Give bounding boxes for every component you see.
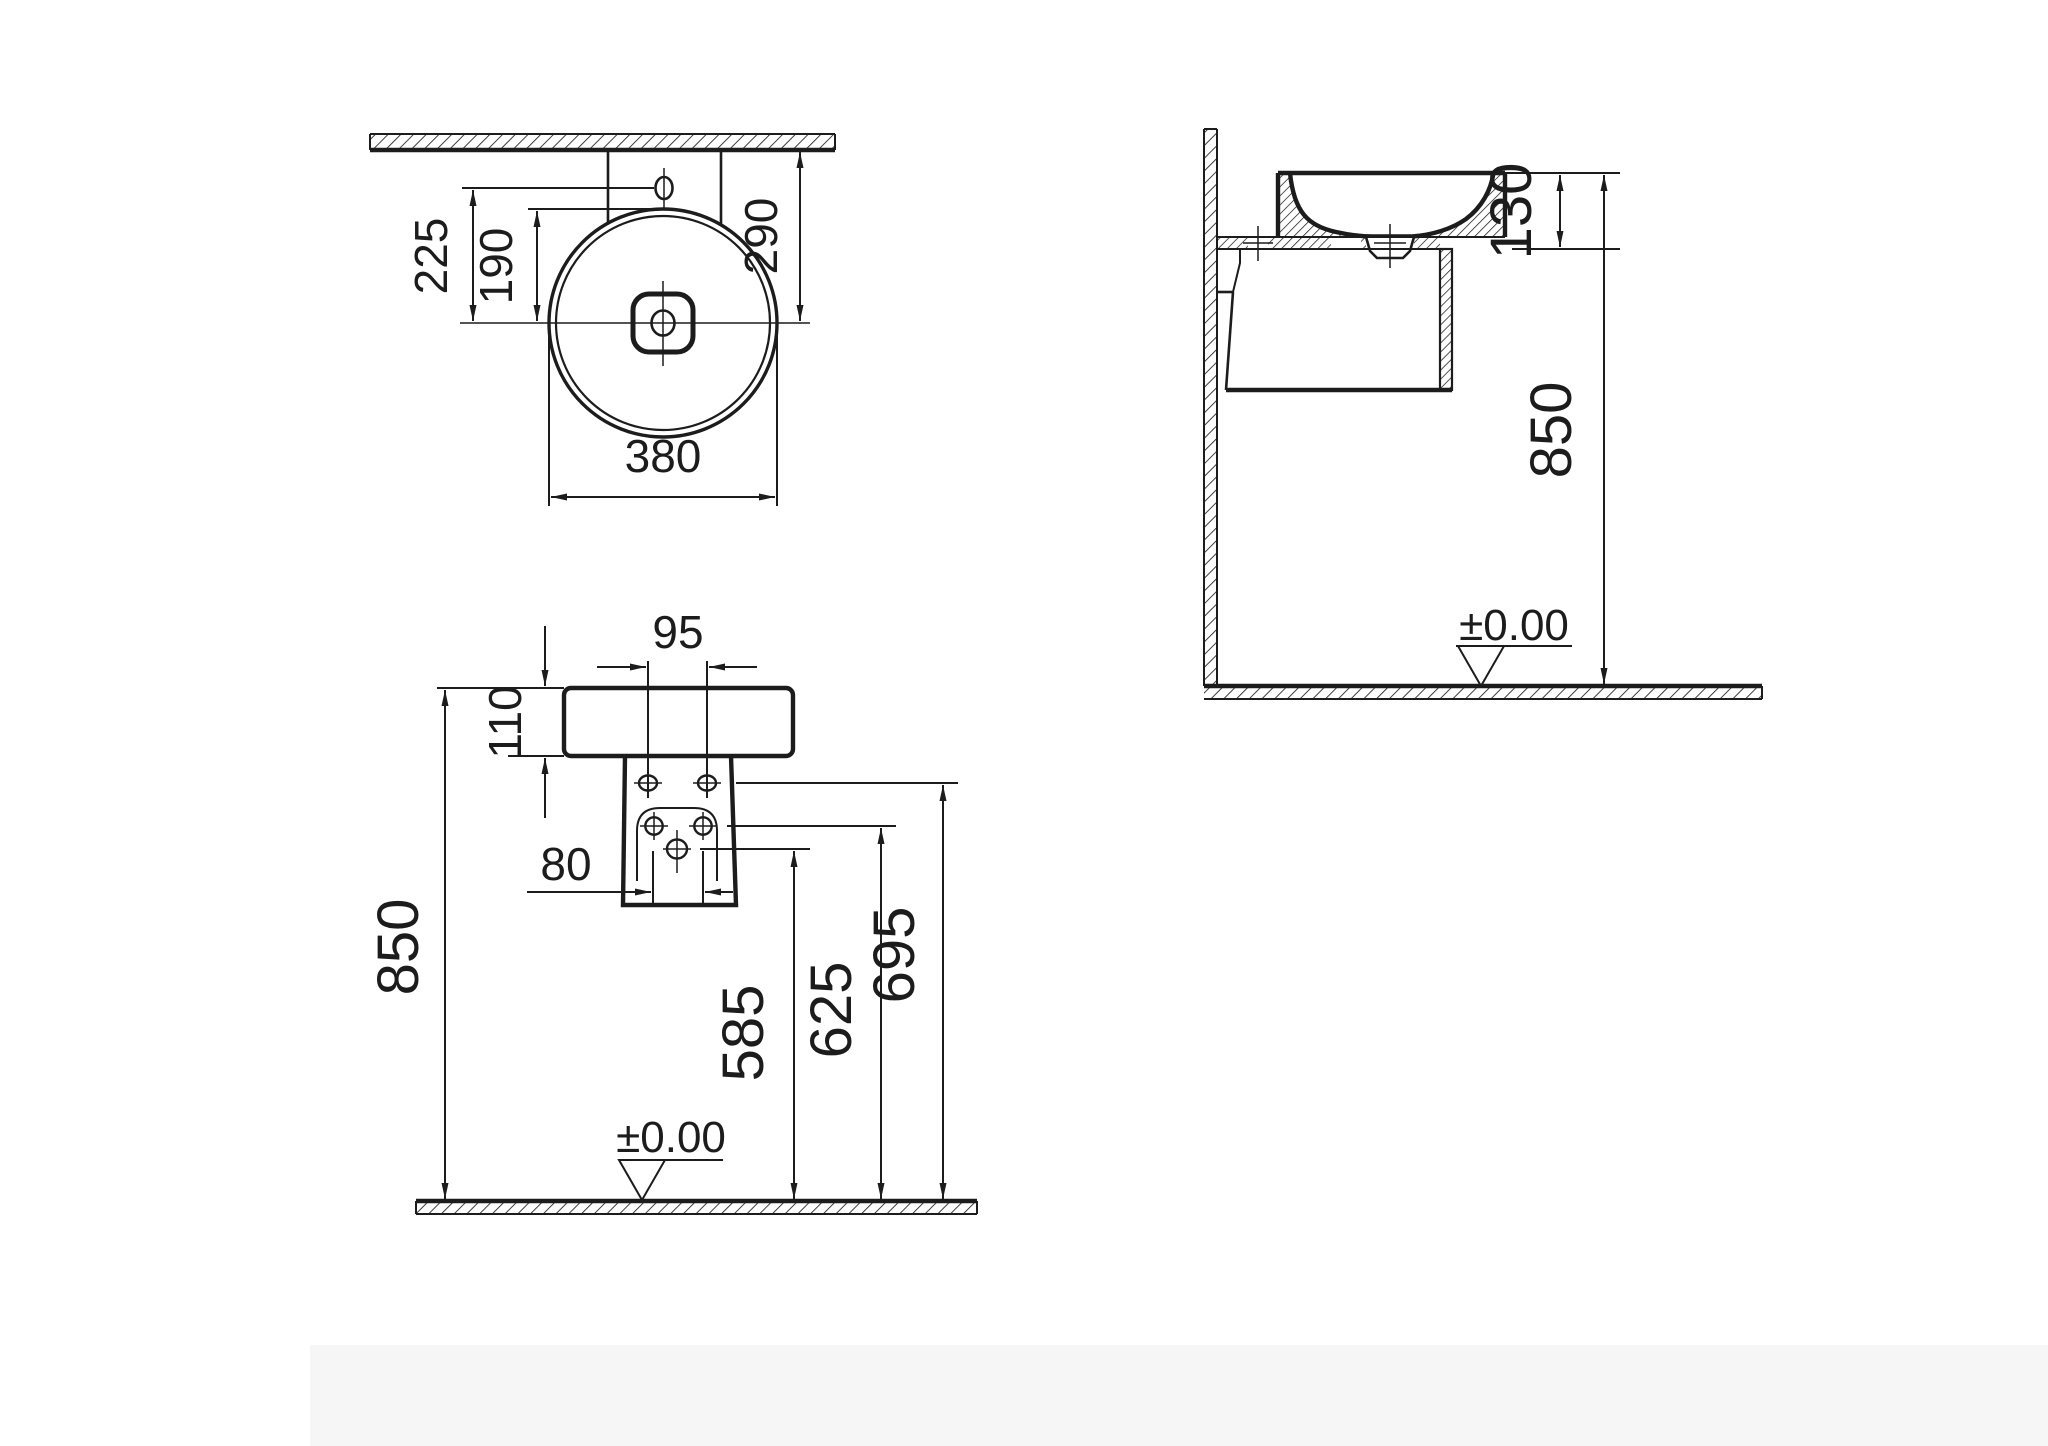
dim-695-label: 695 bbox=[862, 907, 927, 1004]
dim-190-label: 190 bbox=[470, 228, 522, 305]
dim-850-label: 850 bbox=[366, 899, 431, 996]
dim-625-label: 625 bbox=[799, 962, 864, 1059]
pedestal-right-wall bbox=[1440, 249, 1452, 390]
technical-drawing: 225 190 290 380 bbox=[0, 0, 2048, 1446]
dim-850-side-label: 850 bbox=[1519, 382, 1584, 479]
basin-front bbox=[564, 688, 793, 756]
dim-290-label: 290 bbox=[735, 198, 787, 275]
background bbox=[0, 0, 2048, 1446]
dim-130-label: 130 bbox=[1479, 163, 1544, 260]
photo-edge-band bbox=[310, 1345, 2048, 1446]
dim-225-label: 225 bbox=[405, 218, 457, 295]
drawing-canvas: 225 190 290 380 bbox=[0, 0, 2048, 1446]
dim-95-label: 95 bbox=[652, 606, 703, 658]
datum-front-label: ±0.00 bbox=[616, 1113, 726, 1162]
wall-hatch bbox=[370, 134, 835, 150]
dim-380-label: 380 bbox=[625, 430, 702, 482]
dim-110-label: 110 bbox=[479, 685, 531, 758]
dim-585-label: 585 bbox=[711, 985, 776, 1082]
datum-side-label: ±0.00 bbox=[1459, 601, 1569, 650]
dim-80-label: 80 bbox=[540, 838, 591, 890]
side-wall-hatch bbox=[1204, 129, 1217, 686]
